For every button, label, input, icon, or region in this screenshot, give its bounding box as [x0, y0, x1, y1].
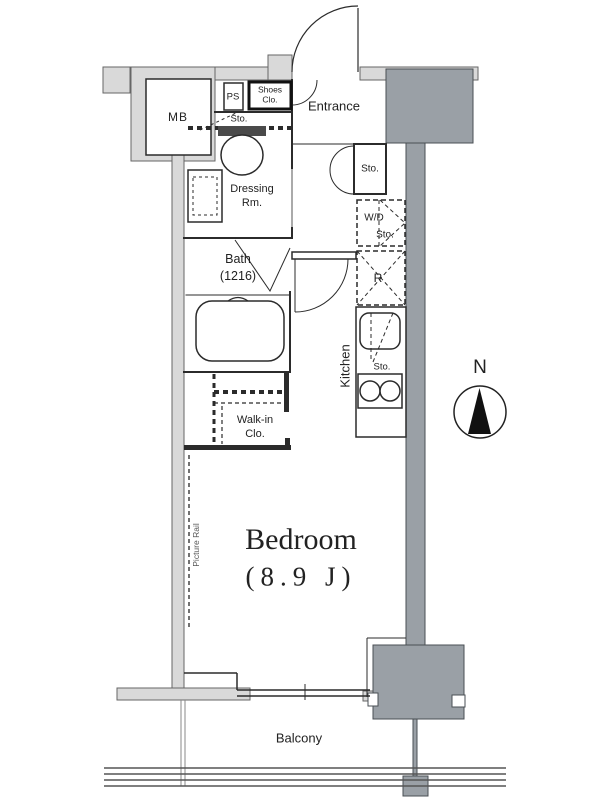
compass-needle [468, 388, 491, 434]
mb-label: MB [168, 110, 188, 124]
kitchen-sink [360, 313, 400, 349]
floor-plan: MB PS Shoes Clo. Entrance Sto. Sto. Dres… [0, 0, 600, 800]
shoes-closet-label: Shoes Clo. [258, 86, 282, 105]
stove-burners [358, 374, 402, 408]
walkin-closet-label: Walk-in Clo. [237, 413, 273, 441]
entrance-storage-label: Sto. [361, 164, 379, 175]
bedroom-name-label: Bedroom [245, 523, 357, 557]
refrigerator-label: R [374, 271, 383, 285]
bath-label: Bath (1216) [220, 251, 256, 285]
hall-door [295, 259, 348, 312]
kitchen-storage-label: Sto. [374, 362, 391, 373]
washbasin [188, 170, 222, 222]
bathtub [196, 298, 284, 362]
picture-rail-label: Picture Rail [191, 523, 201, 566]
washer-dryer-label-line2: Sto. [376, 230, 394, 241]
entrance-door [292, 6, 358, 72]
toilet-storage-label: Sto. [231, 114, 248, 125]
compass [454, 386, 506, 438]
storage-double-doors [330, 146, 354, 194]
ps-label: PS [227, 92, 240, 103]
dressing-room-label: Dressing Rm. [230, 182, 273, 210]
kitchen-label: Kitchen [338, 344, 353, 387]
washer-dryer-label-line1: W/D [364, 213, 383, 224]
entrance-label: Entrance [308, 99, 360, 114]
balcony-label: Balcony [276, 731, 322, 746]
floor-plan-drawing [0, 0, 600, 800]
bedroom-size-label: (8.9 J) [246, 562, 357, 593]
compass-north-label: N [473, 357, 487, 379]
